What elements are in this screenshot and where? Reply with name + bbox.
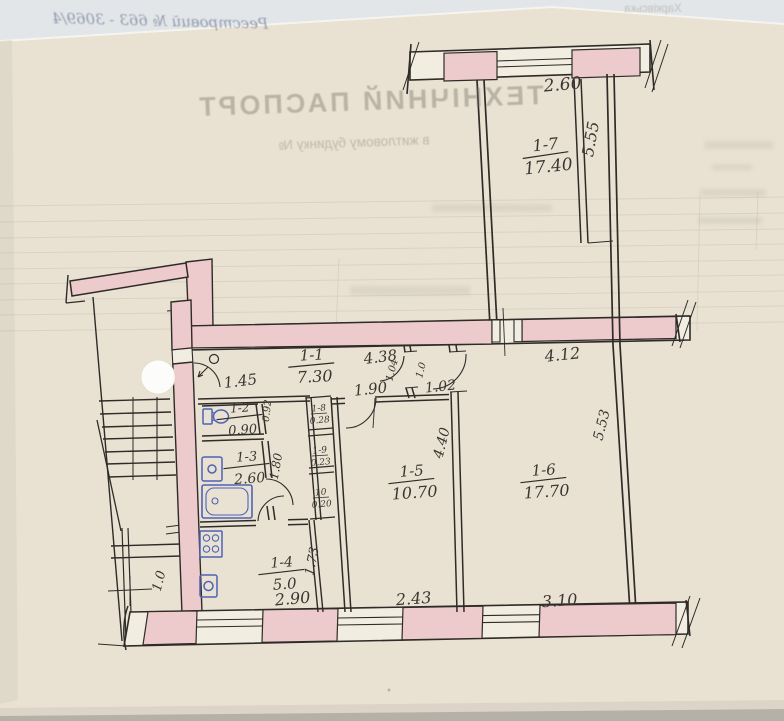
room-number-label: 1-6 (531, 460, 557, 480)
dimension-label: 0.92 (261, 399, 274, 422)
dimension-label: 2.90 (273, 588, 311, 610)
technical-passport-floorplan-photo: 1-17.301-20.901-32.601-45.01-510.701-617… (0, 0, 784, 721)
shaft-area-label: 0.23 (310, 457, 331, 469)
dimension-label: 2.60 (542, 73, 583, 96)
dimension-label: 4.12 (543, 343, 581, 366)
room-area-label: 10.70 (391, 481, 438, 503)
room-area-label: 2.60 (233, 470, 266, 488)
white-dot-sticker (141, 360, 175, 394)
dimension-label: 1.90 (353, 378, 389, 399)
room-number-label: 1-2 (230, 400, 250, 415)
paper-speck (388, 689, 391, 692)
room-number-label: 1-5 (399, 461, 424, 481)
room-number-label: 1-3 (236, 449, 258, 465)
shaft-area-label: 0.28 (309, 415, 330, 427)
room-number-label: 1-4 (270, 554, 294, 572)
room-area-label: 17.70 (523, 480, 570, 502)
dimension-label: 1.02 (424, 377, 457, 396)
dimension-label: 3.10 (541, 590, 578, 611)
room-area-label: 0.90 (228, 422, 258, 439)
dimension-label: 2.43 (394, 588, 432, 610)
room-area-label: 7.30 (296, 366, 333, 387)
floorplan-drawing: 1-17.301-20.901-32.601-45.01-510.701-617… (0, 0, 784, 721)
shaft-area-label: 0.20 (311, 499, 332, 511)
room-number-label: 1-1 (299, 345, 324, 364)
room-number-label: 1-7 (532, 134, 560, 156)
